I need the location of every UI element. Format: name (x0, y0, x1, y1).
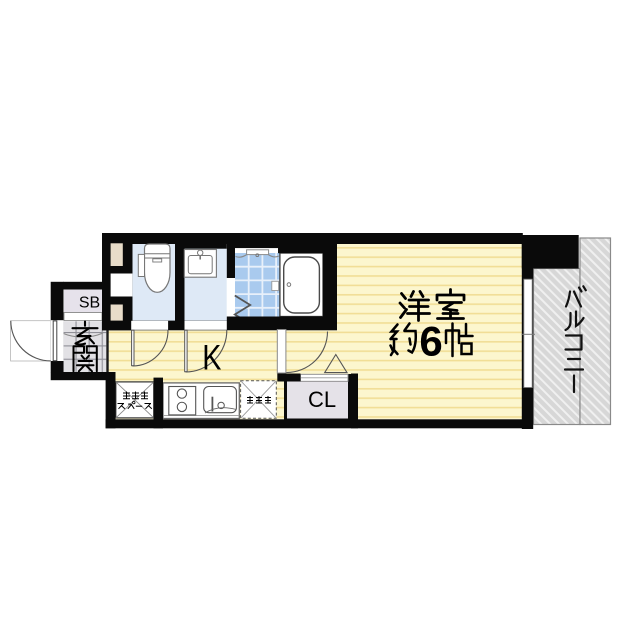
svg-text:SB: SB (79, 295, 100, 312)
svg-text:6: 6 (419, 318, 442, 365)
svg-text:K: K (202, 338, 221, 377)
svg-text:CL: CL (308, 387, 336, 412)
